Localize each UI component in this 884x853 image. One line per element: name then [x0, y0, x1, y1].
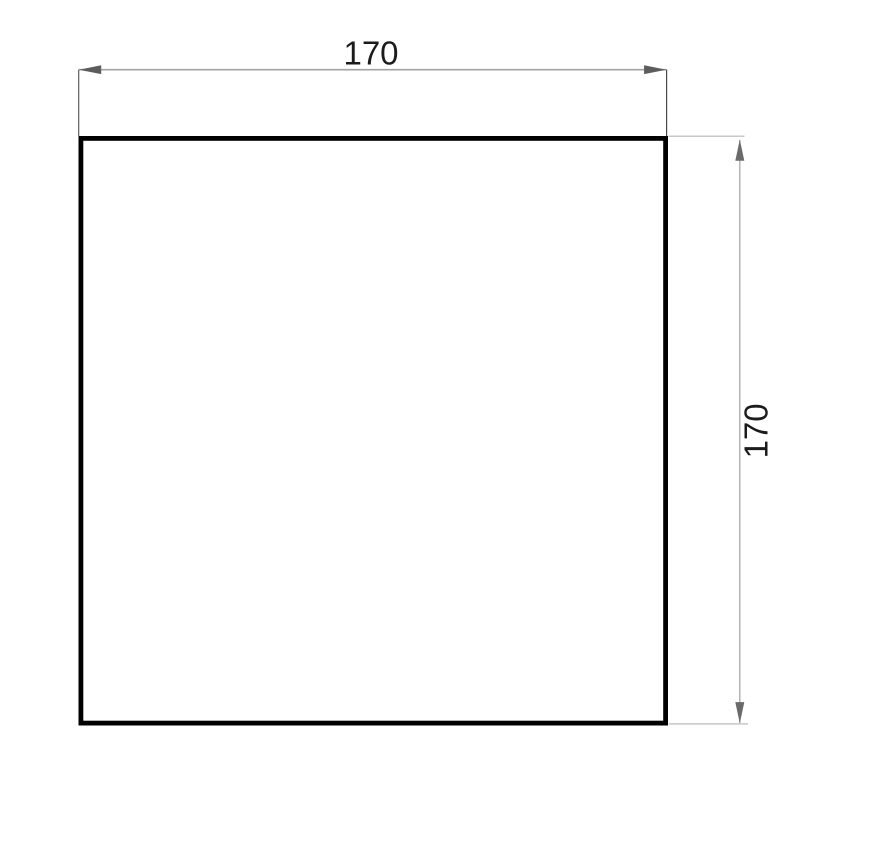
- svg-text:170: 170: [343, 34, 398, 71]
- svg-text:170: 170: [737, 403, 774, 458]
